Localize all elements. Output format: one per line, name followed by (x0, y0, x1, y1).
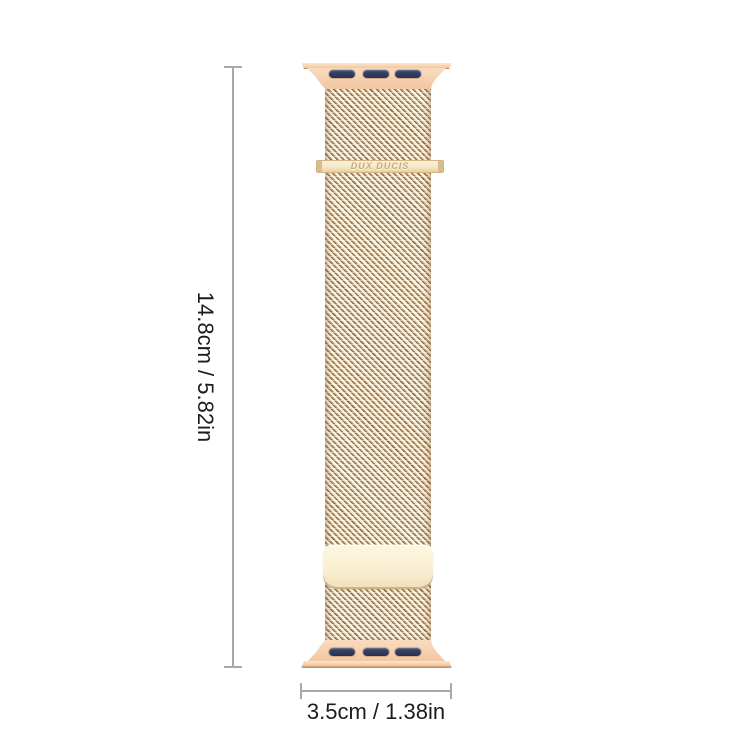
bottom-lug-slot-3 (395, 648, 421, 656)
brand-slider-clasp: DUX DUCIS (316, 160, 444, 173)
magnetic-clasp-plate (323, 545, 433, 589)
bottom-lug-bar (301, 661, 452, 668)
top-lug-slot-1 (329, 70, 355, 78)
height-dimension-label: 14.8cm / 5.82in (194, 292, 216, 442)
brand-label: DUX DUCIS (351, 162, 410, 171)
width-dimension-line (301, 690, 452, 692)
product-dimension-diagram: DUX DUCIS 14.8cm / 5.82in 3.5cm / 1.38in (0, 0, 750, 750)
top-lug-slot-2 (363, 70, 389, 78)
bottom-lug-slot-1 (329, 648, 355, 656)
top-lug-slot-3 (395, 70, 421, 78)
height-dimension-line (232, 67, 234, 667)
width-dimension-tick-right (450, 683, 452, 699)
height-dimension-tick-bottom (224, 666, 242, 668)
watch-band: DUX DUCIS (0, 0, 750, 750)
bottom-lug-slot-2 (363, 648, 389, 656)
width-dimension-label: 3.5cm / 1.38in (307, 701, 445, 723)
